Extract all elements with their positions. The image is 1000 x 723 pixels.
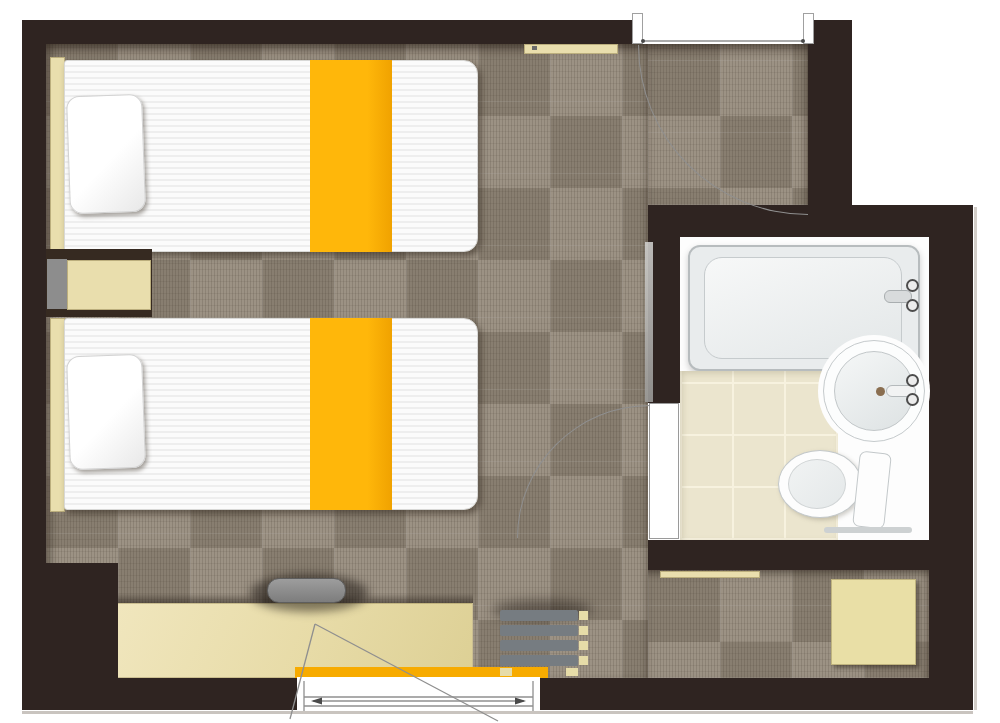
sink-handle <box>906 393 919 406</box>
luggage-rack-peg <box>579 641 588 650</box>
entry-door-jamb <box>632 13 643 44</box>
luggage-rack-peg <box>579 626 588 635</box>
alcove-threshold-strip <box>660 571 760 578</box>
bathroom-door <box>649 403 679 539</box>
luggage-rack-slat <box>500 640 578 651</box>
wall-bathroom-right <box>929 237 973 678</box>
bed1-runner <box>310 60 392 252</box>
bathroom-mirror <box>645 242 653 402</box>
bed2-runner <box>310 318 392 510</box>
entry-wall-shelf <box>524 44 618 54</box>
alcove-stool <box>831 579 916 665</box>
sink-drain <box>876 387 885 396</box>
luggage-rack-peg <box>579 611 588 620</box>
bed2-headboard <box>50 318 65 512</box>
bed2-pillow <box>66 354 146 471</box>
luggage-rack-leg <box>500 668 512 676</box>
entry-door-jamb <box>803 13 814 44</box>
wall-bottom-right <box>540 678 973 710</box>
wall-bathroom-bottom <box>648 540 929 570</box>
plan-right-shadow <box>974 207 977 710</box>
toilet-seat <box>788 459 846 509</box>
luggage-rack-leg <box>566 668 578 676</box>
entry-shelf-hook <box>532 46 537 50</box>
toilet-rail <box>824 527 912 533</box>
luggage-rack-slat <box>500 625 578 636</box>
wall-bottom-left <box>22 678 297 710</box>
luggage-rack-slat <box>500 655 578 666</box>
floor-plan <box>0 0 1000 723</box>
sink-handle <box>906 374 919 387</box>
wall-top <box>22 20 635 44</box>
wall-bathroom-top <box>648 205 973 237</box>
luggage-rack-slat <box>500 610 578 621</box>
bed1-headboard <box>50 57 65 255</box>
bathtub-handle <box>906 299 919 312</box>
bed1-pillow <box>66 94 146 215</box>
nightstand-panel <box>47 259 67 309</box>
desk-chair <box>267 578 346 603</box>
luggage-rack-peg <box>579 656 588 665</box>
nightstand <box>67 260 151 310</box>
bathtub-handle <box>906 279 919 292</box>
plan-bottom-shadow <box>22 711 973 714</box>
